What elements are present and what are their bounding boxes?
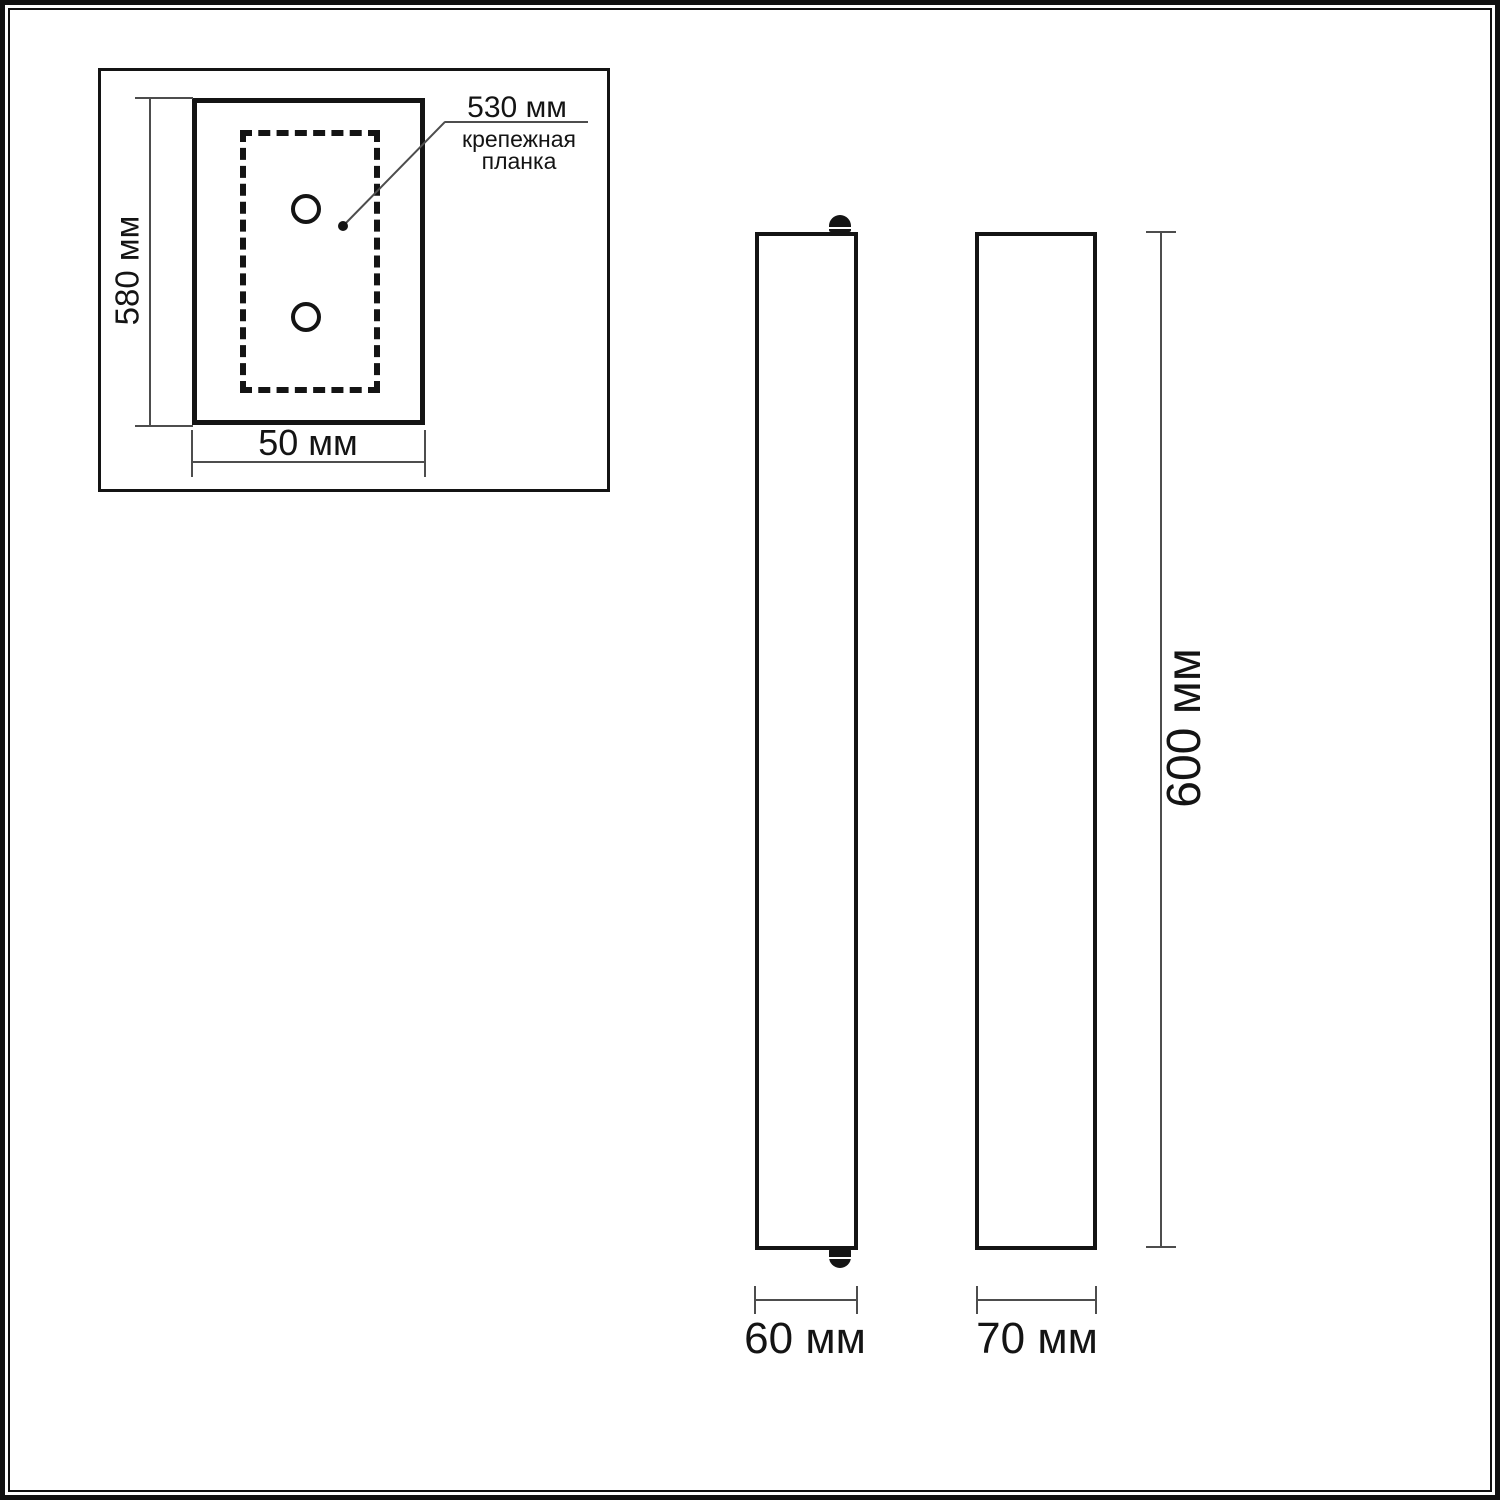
- mounting-hole-top: [291, 194, 321, 224]
- top-knob-stripe: [829, 227, 851, 229]
- dim-600-tick-top: [1146, 231, 1176, 233]
- bottom-knob-stripe: [829, 1257, 851, 1259]
- dim-600-tick-bottom: [1146, 1246, 1176, 1248]
- callout-dim-label: 530 мм: [467, 93, 567, 123]
- dim-70-tick-right: [1095, 1286, 1097, 1314]
- mounting-hole-bottom: [291, 302, 321, 332]
- dim-580-line: [149, 98, 151, 427]
- dim-60-tick-left: [754, 1286, 756, 1314]
- dim-50-tick-left: [191, 430, 193, 477]
- dim-70-tick-left: [976, 1286, 978, 1314]
- dimension-drawing-page: { "diagram": { "type": "product-dimensio…: [0, 0, 1500, 1500]
- dim-580-tick-bottom: [135, 425, 193, 427]
- dim-50-label: 50 мм: [258, 425, 358, 461]
- callout-leader-dot: [338, 221, 348, 231]
- dim-70-label: 70 мм: [976, 1317, 1098, 1361]
- dim-50-tick-right: [424, 430, 426, 477]
- dim-60-tick-right: [856, 1286, 858, 1314]
- dim-60-line: [755, 1299, 858, 1301]
- front-view-rect: [755, 232, 858, 1250]
- callout-name-line2: планка: [482, 150, 557, 173]
- dim-70-line: [977, 1299, 1097, 1301]
- dim-60-label: 60 мм: [744, 1317, 866, 1361]
- top-knob: [829, 215, 851, 232]
- mounting-detail-inset: 580 мм 50 мм 530 мм крепежная планка: [98, 68, 610, 492]
- side-view-rect: [975, 232, 1097, 1250]
- dim-580-tick-top: [135, 97, 193, 99]
- dim-580-label: 580 мм: [111, 211, 144, 331]
- dim-600-label: 600 мм: [1161, 643, 1209, 813]
- mounting-plate-dashed-rect: [240, 130, 380, 393]
